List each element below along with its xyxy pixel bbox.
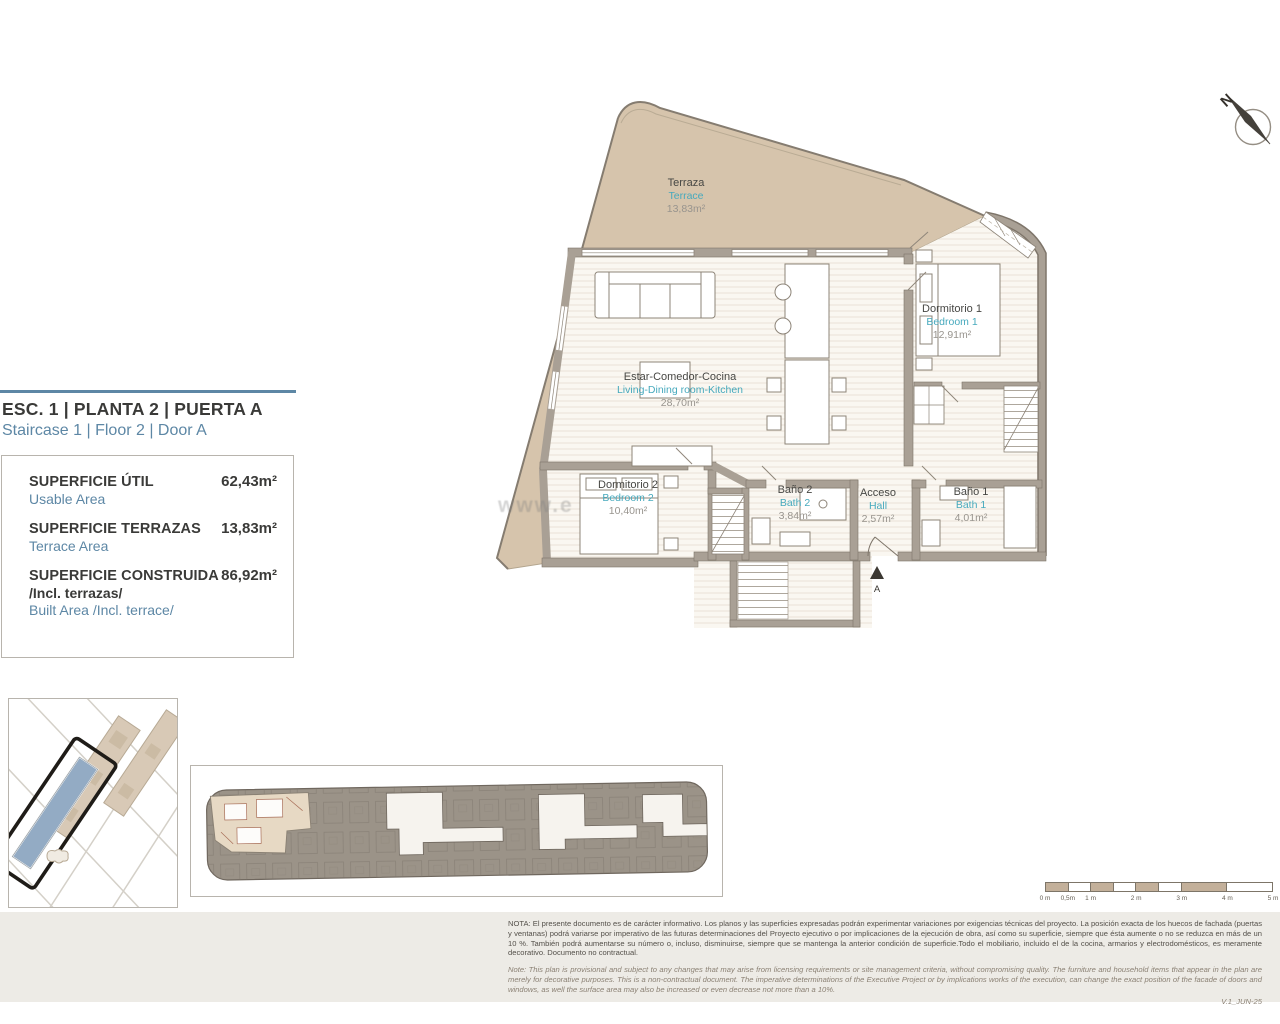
site-location-plan xyxy=(8,698,178,908)
area-label: SUPERFICIE CONSTRUIDA xyxy=(29,568,219,584)
scale-segment xyxy=(1069,883,1092,891)
room-name-es: Terraza xyxy=(668,177,706,189)
room-name-en: Bedroom 1 xyxy=(926,316,978,328)
scale-segment xyxy=(1114,883,1137,891)
table-row: SUPERFICIE CONSTRUIDA 86,92m² /Incl. ter… xyxy=(29,567,277,618)
scale-label: 1 m xyxy=(1085,895,1096,902)
room-area: 12,91m² xyxy=(933,329,972,341)
title-accent-line xyxy=(0,390,296,393)
legal-notes: NOTA: El presente documento es de caráct… xyxy=(508,919,1262,1006)
floor-plan-drawing: Terraza Terrace 13,83m² Estar-Comedor-Co… xyxy=(480,86,1080,646)
site-pool-blob xyxy=(47,850,68,864)
room-name-es: Estar-Comedor-Cocina xyxy=(624,371,737,383)
scale-segment xyxy=(1091,883,1114,891)
area-label-extra: /Incl. terrazas/ xyxy=(29,585,277,601)
table-row: SUPERFICIE TERRAZAS 13,83m² Terrace Area xyxy=(29,520,277,554)
page-subtitle: Staircase 1 | Floor 2 | Door A xyxy=(2,422,207,440)
room-area: 3,84m² xyxy=(779,510,812,522)
area-sublabel: Usable Area xyxy=(29,491,277,507)
area-sublabel: Built Area /Incl. terrace/ xyxy=(29,602,277,618)
area-value: 62,43m² xyxy=(221,473,277,490)
room-name-es: Acceso xyxy=(860,487,896,499)
room-area: 4,01m² xyxy=(955,512,988,524)
room-name-en: Terrace xyxy=(668,190,703,202)
room-name-es: Baño 2 xyxy=(778,484,813,496)
entry-marker: A xyxy=(870,566,884,595)
room-name-en: Living-Dining room-Kitchen xyxy=(617,384,743,396)
north-compass-icon: N xyxy=(1196,62,1280,162)
entry-marker-label: A xyxy=(874,584,881,595)
room-area: 10,40m² xyxy=(609,505,648,517)
note-english: Note: This plan is provisional and subje… xyxy=(508,965,1262,994)
scale-label: 0 m xyxy=(1040,895,1051,902)
compass-north-label: N xyxy=(1217,91,1236,111)
watermark: www.e xyxy=(498,494,574,518)
scale-bar: 0 m 0,5m 1 m 2 m 3 m 4 m 5 m xyxy=(1045,882,1273,908)
page-title: ESC. 1 | PLANTA 2 | PUERTA A xyxy=(2,399,263,420)
area-label: SUPERFICIE TERRAZAS xyxy=(29,521,201,537)
version-label: V.1_JUN-25 xyxy=(508,997,1262,1006)
scale-segment xyxy=(1182,883,1227,891)
room-name-en: Bath 1 xyxy=(956,499,987,511)
scale-label: 0,5m xyxy=(1061,895,1075,902)
overview-building xyxy=(206,782,707,881)
tv-unit xyxy=(632,446,712,466)
note-spanish: NOTA: El presente documento es de caráct… xyxy=(508,919,1262,958)
area-value: 86,92m² xyxy=(221,567,277,584)
scale-label: 4 m xyxy=(1222,895,1233,902)
area-sublabel: Terrace Area xyxy=(29,538,277,554)
scale-segment xyxy=(1159,883,1182,891)
scale-segment xyxy=(1046,883,1069,891)
room-name-es: Dormitorio 1 xyxy=(922,303,982,315)
room-name-es: Dormitorio 2 xyxy=(598,479,658,491)
scale-segment xyxy=(1136,883,1159,891)
room-area: 2,57m² xyxy=(862,513,895,525)
room-area: 28,70m² xyxy=(661,397,700,409)
scale-label: 2 m xyxy=(1131,895,1142,902)
room-name-en: Bath 2 xyxy=(780,497,811,509)
scale-segment xyxy=(1227,883,1272,891)
room-name-en: Hall xyxy=(869,500,887,512)
area-summary-table: SUPERFICIE ÚTIL 62,43m² Usable Area SUPE… xyxy=(1,455,294,658)
room-area: 13,83m² xyxy=(667,203,706,215)
area-label: SUPERFICIE ÚTIL xyxy=(29,474,154,490)
room-name-es: Baño 1 xyxy=(954,486,989,498)
building-overview-plan xyxy=(190,765,723,897)
sofa xyxy=(595,272,715,318)
scale-bar-segments xyxy=(1045,882,1273,892)
area-value: 13,83m² xyxy=(221,520,277,537)
scale-label: 5 m xyxy=(1268,895,1279,902)
scale-label: 3 m xyxy=(1176,895,1187,902)
table-row: SUPERFICIE ÚTIL 62,43m² Usable Area xyxy=(29,473,277,507)
room-name-en: Bedroom 2 xyxy=(602,492,654,504)
